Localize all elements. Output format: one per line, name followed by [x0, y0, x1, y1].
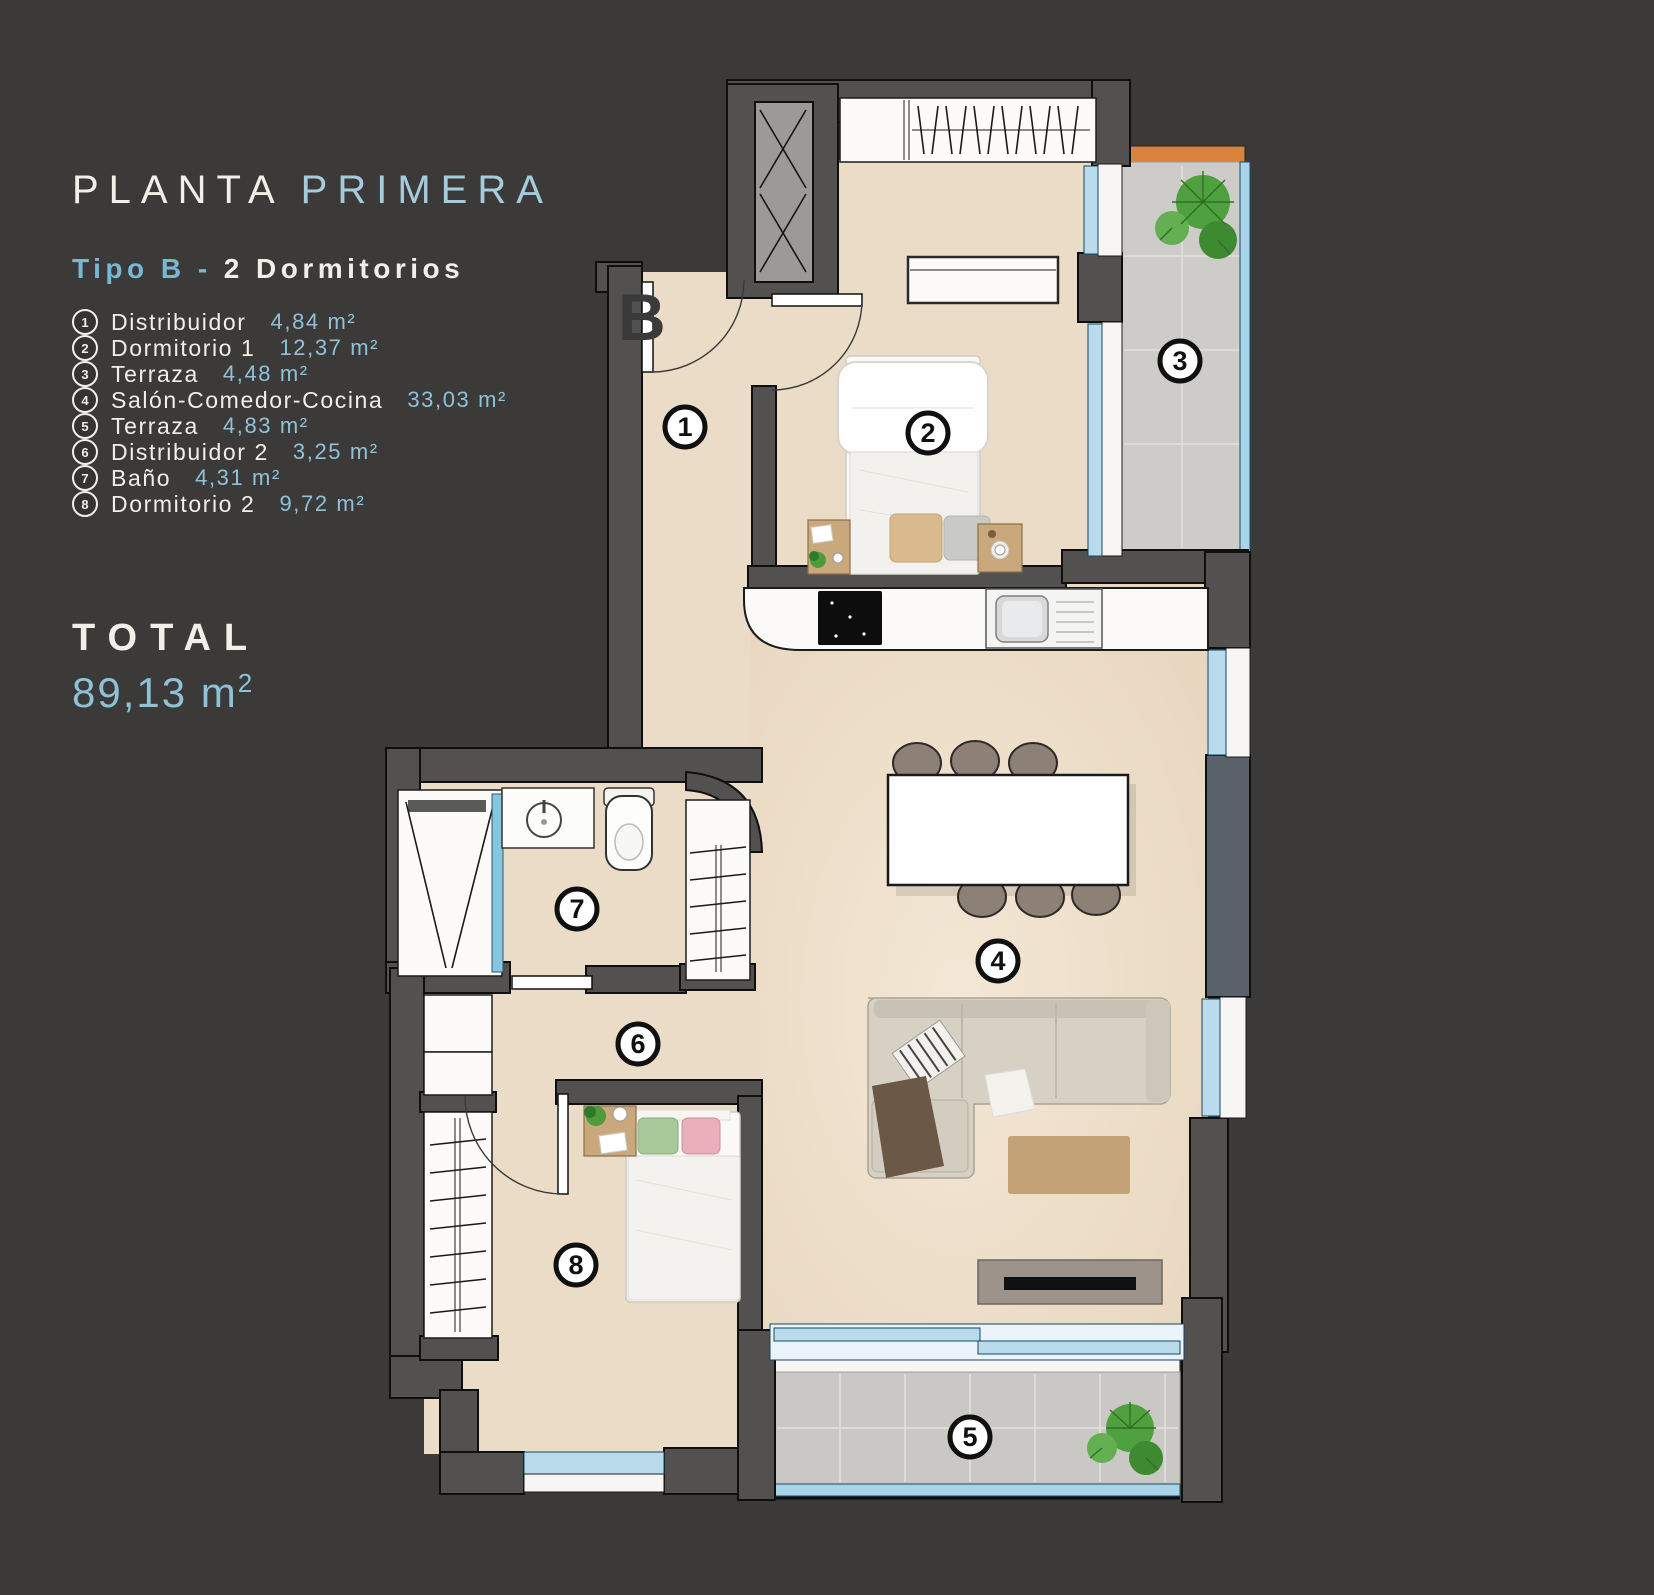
- glass-balustrade: [1240, 162, 1250, 552]
- svg-text:1: 1: [677, 412, 692, 442]
- room-label: Baño: [111, 465, 171, 492]
- window-glass: [1202, 999, 1220, 1116]
- marker-7: 7: [557, 889, 597, 929]
- svg-text:5: 5: [962, 1422, 977, 1452]
- wall-segment: [1092, 80, 1130, 166]
- window-sill: [1226, 648, 1250, 757]
- kitchen: [744, 588, 1208, 650]
- page: PLANTAPRIMERA Tipo B -2 Dormitorios 1 Di…: [0, 0, 1654, 1595]
- wall-segment: [1182, 1298, 1222, 1502]
- svg-text:7: 7: [569, 894, 584, 924]
- plan-subtitle: Tipo B -2 Dormitorios: [72, 253, 553, 285]
- room-label: Distribuidor: [111, 309, 247, 336]
- list-item: 5 Terraza 4,83 m²: [72, 413, 553, 439]
- list-item: 7 Baño 4,31 m²: [72, 465, 553, 491]
- wall-segment: [390, 968, 424, 1372]
- list-item: 1 Distribuidor 4,84 m²: [72, 309, 553, 335]
- marker-2: 2: [908, 413, 948, 453]
- legend-item-number: 6: [72, 439, 98, 465]
- shower: [398, 790, 503, 976]
- svg-text:3: 3: [1172, 346, 1187, 376]
- room-area: 4,84 m²: [271, 309, 357, 335]
- legend-item-number: 7: [72, 465, 98, 491]
- list-item: 8 Dormitorio 2 9,72 m²: [72, 491, 553, 517]
- marker-1: 1: [665, 407, 705, 447]
- marker-6: 6: [618, 1024, 658, 1064]
- cooktop: [818, 591, 882, 645]
- window-sill: [1098, 164, 1122, 256]
- room-label: Terraza: [111, 361, 199, 388]
- elevator-shaft: [755, 102, 813, 282]
- total-label: TOTAL: [72, 617, 553, 660]
- room-area: 9,72 m²: [279, 491, 365, 517]
- wall-segment: [738, 1096, 762, 1350]
- wardrobe: [840, 98, 1096, 162]
- bathroom-sink: [502, 788, 594, 848]
- window-glass: [524, 1452, 664, 1474]
- door-leaf: [772, 294, 862, 306]
- window-glass: [1084, 166, 1098, 254]
- subtitle-type: Tipo B -: [72, 253, 212, 284]
- title-primary: PLANTA: [72, 168, 285, 212]
- window-sill: [1102, 322, 1122, 556]
- room-label: Dormitorio 2: [111, 491, 255, 518]
- pillow-green: [638, 1118, 678, 1154]
- marker-3: 3: [1160, 341, 1200, 381]
- cushion: [890, 514, 942, 562]
- wood-deck-edge: [1117, 146, 1245, 162]
- total-sup: 2: [238, 668, 254, 698]
- legend-panel: PLANTAPRIMERA Tipo B -2 Dormitorios 1 Di…: [72, 168, 553, 717]
- window-glass: [1208, 650, 1226, 755]
- list-item: 6 Distribuidor 2 3,25 m²: [72, 439, 553, 465]
- list-item: 4 Salón-Comedor-Cocina 33,03 m²: [72, 387, 553, 413]
- glass-balustrade: [775, 1484, 1180, 1496]
- pillow-pink: [682, 1118, 720, 1154]
- marker-4: 4: [978, 941, 1018, 981]
- door-leaf: [558, 1094, 568, 1194]
- svg-text:4: 4: [990, 946, 1005, 976]
- room-label: Salón-Comedor-Cocina: [111, 387, 383, 414]
- tv: [1004, 1277, 1136, 1290]
- nightstand: [808, 520, 850, 574]
- legend-item-number: 8: [72, 491, 98, 517]
- room-area: 4,31 m²: [195, 465, 281, 491]
- tv-console: [978, 1260, 1162, 1304]
- shaft-cabin: [755, 102, 813, 282]
- desk: [584, 1106, 636, 1156]
- svg-text:8: 8: [568, 1250, 583, 1280]
- dresser: [908, 257, 1058, 303]
- nightstand: [978, 524, 1022, 572]
- total-number: 89,13 m: [72, 669, 238, 716]
- room-list: 1 Distribuidor 4,84 m² 2 Dormitorio 1 12…: [72, 309, 553, 517]
- page-title: PLANTAPRIMERA: [72, 168, 553, 213]
- closet-shelved: [686, 800, 750, 980]
- title-secondary: PRIMERA: [301, 168, 553, 212]
- room-label: Dormitorio 1: [111, 335, 255, 362]
- wall-segment: [586, 966, 686, 993]
- total-block: TOTAL 89,13 m2: [72, 617, 553, 717]
- list-item: 3 Terraza 4,48 m²: [72, 361, 553, 387]
- bed-single: [626, 1110, 740, 1302]
- duvet: [628, 1156, 740, 1300]
- wall-segment: [556, 1080, 762, 1104]
- room-label: Terraza: [111, 413, 199, 440]
- wall-segment: [440, 1452, 524, 1494]
- room-area: 4,48 m²: [223, 361, 309, 387]
- room-label: Distribuidor 2: [111, 439, 269, 466]
- total-value: 89,13 m2: [72, 668, 553, 717]
- room-area: 33,03 m²: [407, 387, 507, 413]
- wall-pillar: [1078, 253, 1122, 322]
- marker-5: 5: [950, 1417, 990, 1457]
- dining-table: [888, 775, 1128, 885]
- bed-double: [838, 356, 990, 574]
- list-item: 2 Dormitorio 1 12,37 m²: [72, 335, 553, 361]
- wall-segment: [1205, 552, 1250, 648]
- sliding-door: [770, 1324, 1184, 1360]
- kitchen-sink: [986, 589, 1102, 648]
- door-leaf: [512, 976, 592, 989]
- legend-item-number: 4: [72, 387, 98, 413]
- utility-cabinets: [424, 995, 492, 1095]
- rug: [1008, 1136, 1130, 1194]
- wall-pillar: [1206, 755, 1250, 997]
- legend-item-number: 3: [72, 361, 98, 387]
- closet-shelved: [424, 1112, 492, 1338]
- marker-8: 8: [556, 1245, 596, 1285]
- wall-segment: [738, 1330, 775, 1500]
- svg-text:6: 6: [630, 1029, 645, 1059]
- window-glass: [1088, 324, 1102, 556]
- room-area: 3,25 m²: [293, 439, 379, 465]
- window-sill: [524, 1474, 664, 1492]
- legend-item-number: 5: [72, 413, 98, 439]
- room-area: 12,37 m²: [279, 335, 379, 361]
- wall-segment: [752, 386, 776, 590]
- subtitle-bedrooms: 2 Dormitorios: [224, 253, 465, 284]
- room-area: 4,83 m²: [223, 413, 309, 439]
- svg-text:2: 2: [920, 418, 935, 448]
- window-sill: [1220, 997, 1246, 1118]
- kitchen-counter: [744, 588, 1208, 650]
- entrance-label: B: [618, 280, 666, 354]
- legend-item-number: 2: [72, 335, 98, 361]
- wall-segment: [420, 1336, 498, 1360]
- toilet: [604, 788, 654, 870]
- legend-item-number: 1: [72, 309, 98, 335]
